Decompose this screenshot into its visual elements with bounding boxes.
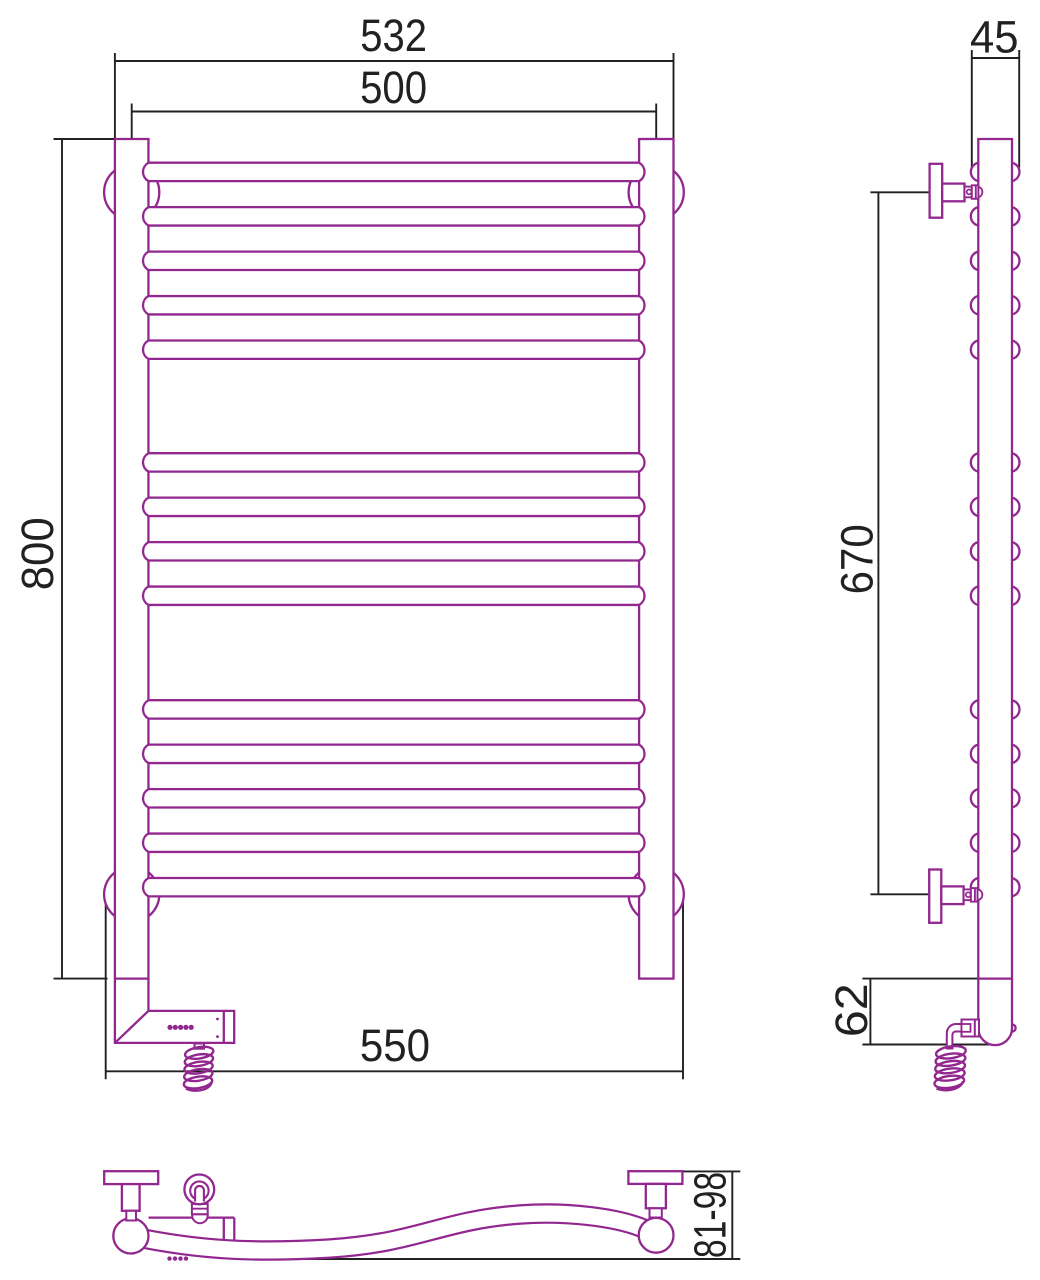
svg-text:800: 800 <box>12 517 63 590</box>
svg-text:62: 62 <box>826 983 877 1037</box>
svg-text:45: 45 <box>970 11 1019 62</box>
svg-text:500: 500 <box>360 62 427 113</box>
svg-text:550: 550 <box>360 1020 430 1071</box>
svg-text:532: 532 <box>360 10 427 61</box>
svg-text:670: 670 <box>831 524 882 594</box>
svg-text:81-98: 81-98 <box>684 1172 735 1258</box>
